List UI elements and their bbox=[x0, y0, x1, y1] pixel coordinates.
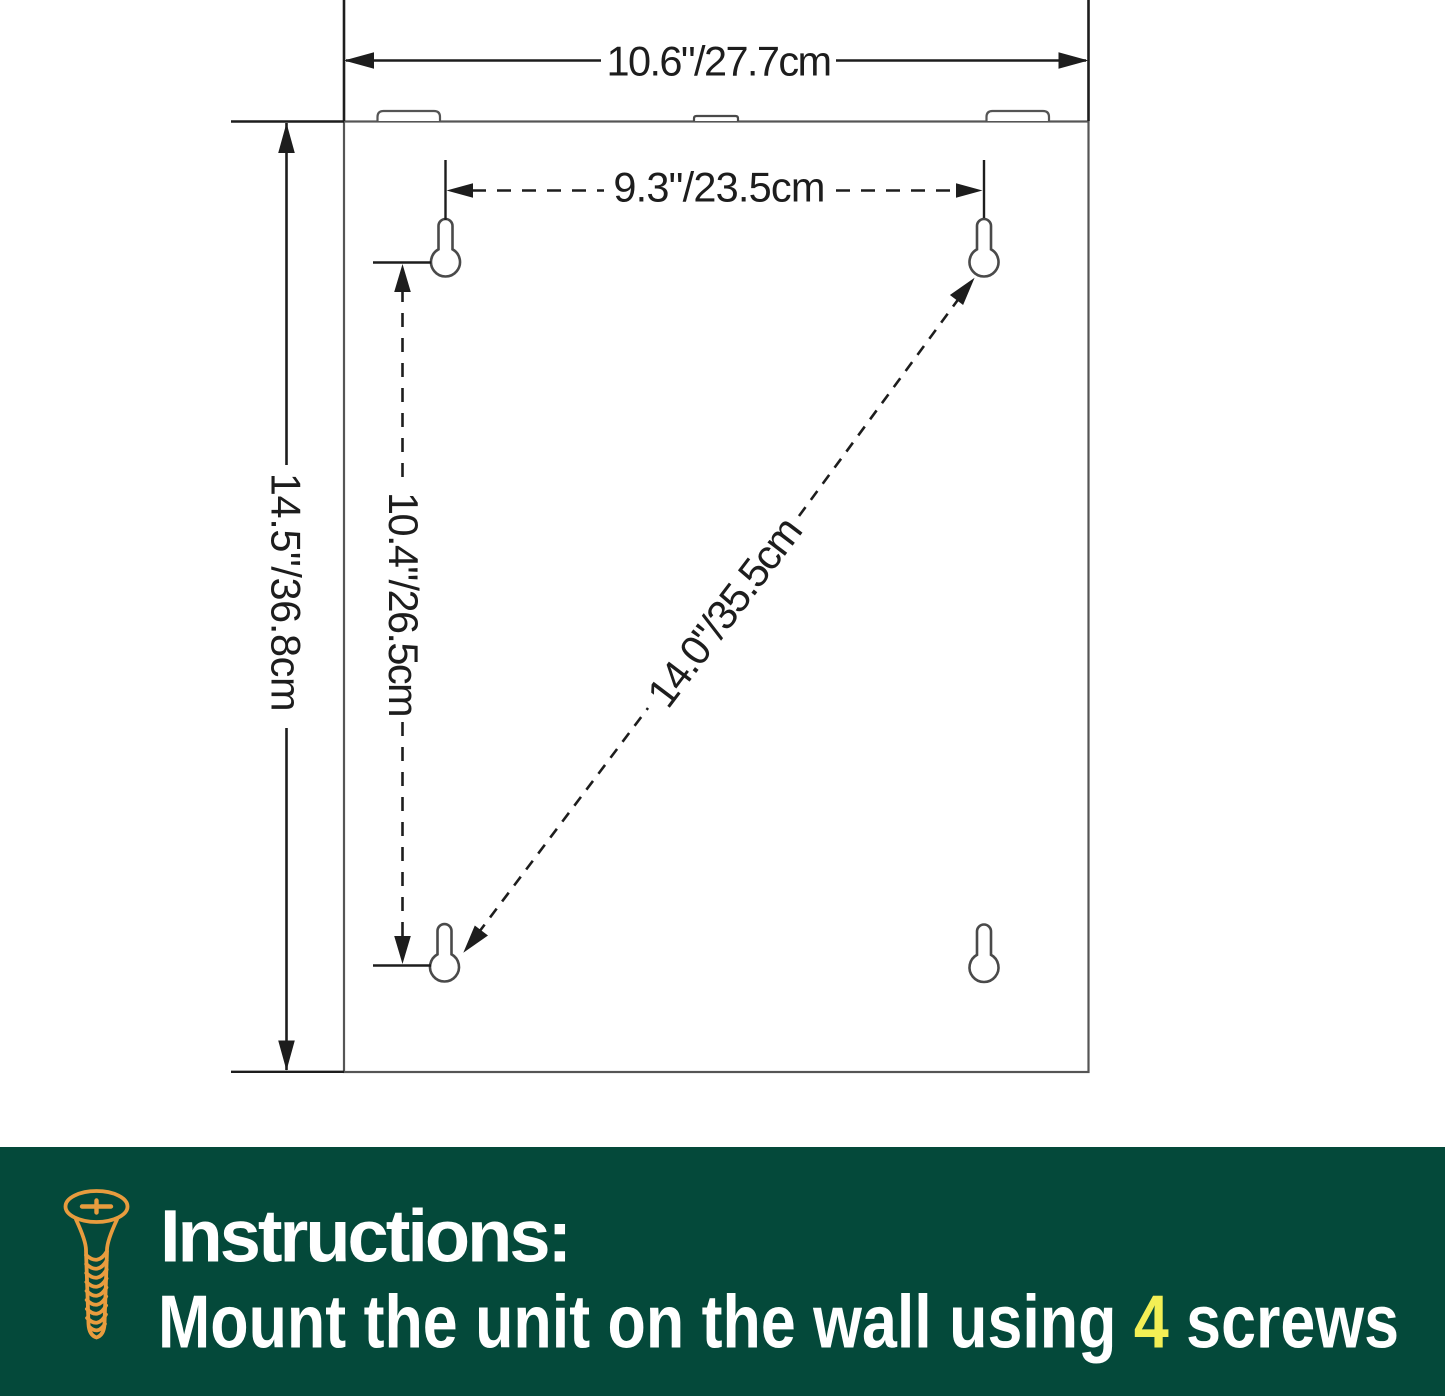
svg-text:14.5"/36.8cm: 14.5"/36.8cm bbox=[263, 473, 310, 711]
svg-text:10.6"/27.7cm: 10.6"/27.7cm bbox=[607, 38, 831, 85]
svg-text:Mount the unit on the wall usi: Mount the unit on the wall using 4 screw… bbox=[158, 1280, 1399, 1364]
svg-text:Instructions:: Instructions: bbox=[160, 1195, 569, 1278]
svg-text:9.3"/23.5cm: 9.3"/23.5cm bbox=[613, 164, 824, 211]
svg-text:10.4"/26.5cm: 10.4"/26.5cm bbox=[380, 492, 427, 716]
